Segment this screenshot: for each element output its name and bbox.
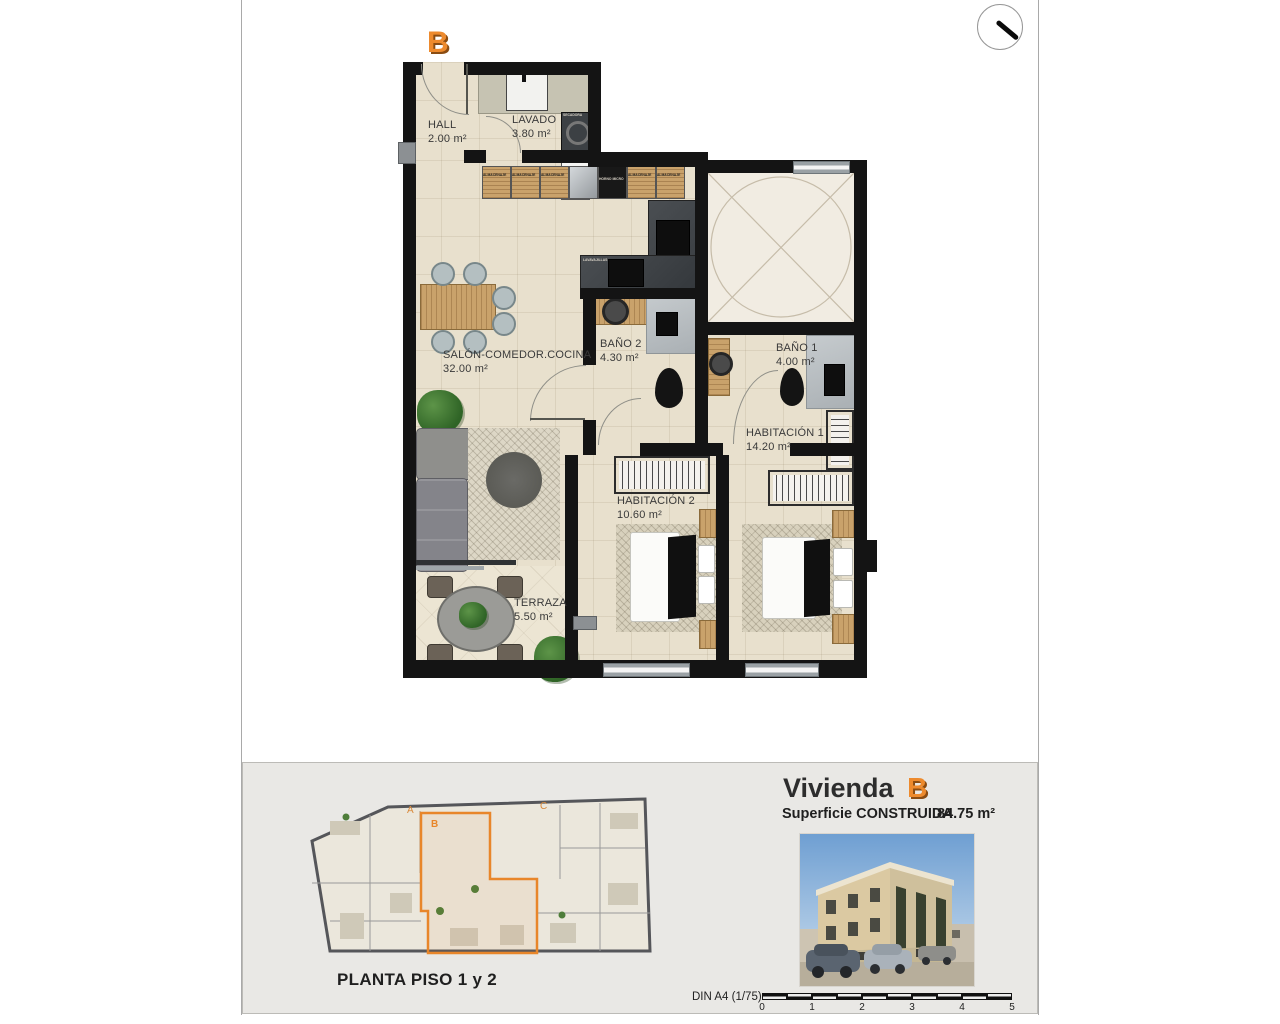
hab1-pillow xyxy=(833,548,853,576)
fridge xyxy=(569,166,598,199)
wall xyxy=(583,420,596,455)
surface-value: 84.75 m² xyxy=(937,806,995,822)
bath2-door-leaf xyxy=(530,418,585,420)
scale-bar xyxy=(762,993,1012,1000)
hab1-window xyxy=(745,663,819,677)
wall xyxy=(588,62,601,162)
wall xyxy=(716,455,729,678)
wall xyxy=(522,150,600,163)
cooktop xyxy=(608,259,644,287)
hab1-nightstand xyxy=(832,510,856,538)
wall xyxy=(403,62,423,75)
hab2-pillow xyxy=(698,576,715,604)
wall xyxy=(695,160,708,455)
unit-title-letter: B xyxy=(907,772,927,803)
room-label-salon: SALÓN-COMEDOR.COCINA32.00 m² xyxy=(443,348,591,377)
wall xyxy=(580,288,708,299)
terraza-sliding-door-panel xyxy=(412,566,484,570)
dining-chair xyxy=(492,286,516,310)
laundry-sink xyxy=(506,74,548,111)
wall xyxy=(588,152,708,167)
hab2-wardrobe xyxy=(614,456,710,494)
key-plan-caption: PLANTA PISO 1 y 2 xyxy=(337,970,497,990)
unit-letter: B xyxy=(427,26,449,60)
dining-chair xyxy=(431,262,455,286)
wall xyxy=(640,443,710,456)
kitchen-cabinet: ALMACENAJE xyxy=(511,166,540,199)
dining-chair xyxy=(463,262,487,286)
scale-tick: 2 xyxy=(852,1002,872,1013)
hab2-pillow xyxy=(698,545,715,573)
wall xyxy=(565,455,578,565)
floor-patio xyxy=(708,173,854,322)
patio-window xyxy=(793,161,850,174)
hab2-blanket xyxy=(668,535,696,619)
bath2-sink xyxy=(602,298,629,325)
room-label-lavado: LAVADO3.80 m² xyxy=(512,113,556,142)
kitchen-cabinet: ALMACENAJE xyxy=(540,166,569,199)
sofa xyxy=(416,478,468,572)
room-label-bano2: BAÑO 24.30 m² xyxy=(600,337,642,366)
scale-tick: 5 xyxy=(1002,1002,1022,1013)
hab1-wardrobe-vertical xyxy=(826,410,854,470)
kitchen-cabinet: ALMACENAJE xyxy=(482,166,511,199)
hab2-window xyxy=(603,663,690,677)
bath1-sink xyxy=(709,352,733,376)
scale-tick: 1 xyxy=(802,1002,822,1013)
hab1-pillow xyxy=(833,580,853,608)
plan-sheet: B SECADORA LAVADORA ALMACENAJE ALMACENAJ… xyxy=(0,0,1280,1024)
dining-table xyxy=(420,284,496,330)
terraza-sliding-door xyxy=(408,560,516,565)
surface-label: Superficie CONSTRUIDA xyxy=(782,806,953,822)
hab1-blanket xyxy=(804,539,830,617)
wall-box xyxy=(573,616,597,630)
oven-micro: HORNO MICRO xyxy=(598,166,627,199)
key-plan-letter-b: B xyxy=(431,819,438,830)
key-plan-letter-a: A xyxy=(407,805,414,816)
hab1-wardrobe xyxy=(768,470,854,506)
room-label-hab2: HABITACIÓN 210.60 m² xyxy=(617,494,695,523)
room-label-hall: HALL2.00 m² xyxy=(428,118,467,147)
scale-tick: 3 xyxy=(902,1002,922,1013)
hab1-nightstand xyxy=(832,614,856,644)
room-label-hab1: HABITACIÓN 114.20 m² xyxy=(746,426,824,455)
dining-chair xyxy=(492,312,516,336)
room-label-terraza: TERRAZA5.50 m² xyxy=(514,596,567,625)
entry-door-leaf xyxy=(466,64,468,114)
wall xyxy=(464,62,601,75)
page-border-right xyxy=(1038,0,1039,1015)
kitchen-cabinet: ALMACENAJE xyxy=(627,166,656,199)
scale-tick: 0 xyxy=(752,1002,772,1013)
kitchen-cabinet: ALMACENAJE xyxy=(656,166,685,199)
wall xyxy=(464,150,486,163)
patio-cross-circle xyxy=(708,173,854,322)
unit-title: Vivienda B xyxy=(783,772,927,804)
wall xyxy=(860,540,877,572)
scale-tick: 4 xyxy=(952,1002,972,1013)
salon-round-rug xyxy=(486,452,542,508)
unit-title-prefix: Vivienda xyxy=(783,773,894,803)
key-plan-letter-c: C xyxy=(540,801,547,812)
wall xyxy=(854,160,867,678)
building-photo xyxy=(799,833,975,987)
room-label-bano1: BAÑO 14.00 m² xyxy=(776,341,818,370)
wall xyxy=(695,322,867,335)
meter-box xyxy=(398,142,416,164)
key-plan: A B C xyxy=(300,793,655,963)
bath1-shower-column xyxy=(824,364,845,396)
bath2-shower-column xyxy=(656,312,678,336)
